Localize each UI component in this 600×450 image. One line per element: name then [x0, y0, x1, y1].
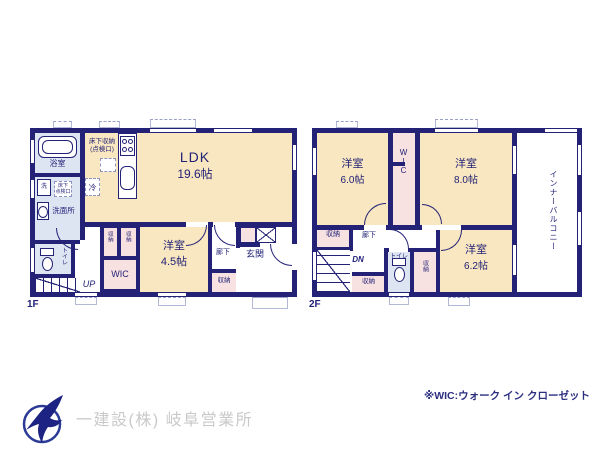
toilet-bowl-icon — [42, 257, 53, 271]
window — [545, 128, 577, 133]
window — [292, 145, 297, 170]
stove-burner-icon — [122, 139, 127, 144]
bedroom-8-0-label: 洋室 — [420, 158, 512, 172]
bedroom-4-5-label: 洋室 — [140, 240, 208, 254]
bay-window — [389, 297, 409, 305]
hall-closet-label: 収納 — [212, 277, 236, 285]
bay-window — [448, 297, 470, 306]
window — [150, 128, 196, 133]
ldk-area: 19.6帖 — [150, 167, 240, 182]
door-opening — [364, 225, 386, 230]
wall-segment — [236, 243, 260, 247]
wall-segment — [317, 225, 512, 230]
wic-1f-label: WIC — [104, 269, 136, 280]
bedroom-6-2-area: 6.2帖 — [440, 261, 512, 274]
wall-segment — [212, 269, 236, 273]
washroom-label: 洗面所 — [47, 206, 80, 215]
shoe-cabinet-icon — [256, 227, 276, 243]
closet-b-label: 収納 — [124, 231, 131, 242]
stairs-up-label: UP — [80, 279, 98, 290]
entrance-opening — [292, 244, 297, 270]
closet-2f-c-label: 収納 — [420, 260, 428, 272]
toilet-bowl-icon — [394, 267, 405, 282]
underfloor-storage-label: 床下収納 (点検口) — [84, 138, 120, 154]
window — [512, 245, 517, 275]
window — [577, 145, 582, 175]
wall-segment — [35, 173, 80, 177]
closet-2f-c — [414, 252, 436, 292]
floor2-label: 2F — [309, 299, 331, 312]
closet-a-label: 収納 — [106, 231, 113, 242]
bay-window — [53, 121, 72, 128]
underfloor-storage-hatch — [100, 158, 116, 172]
bedroom-6-2-label: 洋室 — [440, 244, 512, 258]
stairs-diagonal — [35, 278, 80, 292]
washer-label: 洗 — [37, 184, 51, 192]
bathtub-inner — [42, 140, 73, 154]
door-opening — [422, 225, 442, 230]
stove-burner-icon — [128, 139, 133, 144]
kitchen-sink-icon — [120, 166, 135, 190]
hall-2f-label: 廊下 — [356, 232, 382, 241]
company-logo — [18, 393, 66, 447]
stove-burner-icon — [122, 147, 127, 152]
window — [312, 252, 317, 280]
stove-burner-icon — [128, 147, 133, 152]
floor1-label: 1F — [27, 299, 49, 312]
balcony-label: インナーバルコニー — [548, 170, 558, 251]
closet-2f-b-label: 収納 — [352, 278, 385, 286]
underfloor-hatch-label: 床下 点検口 — [54, 183, 72, 196]
wic-2f-label: WIC — [398, 148, 408, 175]
bath-label: 浴室 — [35, 159, 80, 169]
fridge-label: 冷 — [85, 183, 100, 192]
logo-bird-icon — [18, 393, 66, 447]
window — [577, 212, 582, 245]
bedroom-4-5-area: 4.5帖 — [140, 256, 208, 270]
window — [435, 128, 478, 133]
wall-segment — [388, 133, 393, 225]
entrance-label: 玄関 — [240, 249, 270, 260]
closet-2f-a-label: 収納 — [317, 231, 349, 240]
window — [214, 128, 252, 133]
stairs-diagonal — [317, 250, 350, 292]
wall-segment — [349, 227, 353, 251]
bedroom-6-0-area: 6.0帖 — [317, 175, 388, 188]
window — [30, 180, 35, 198]
company-name: 一建設(株) 岐阜営業所 — [76, 406, 253, 430]
hall-1f-label: 廊下 — [209, 249, 237, 258]
toilet-1f-label: トイレ — [59, 247, 67, 265]
stairs-down-label: DN — [349, 255, 367, 265]
bay-window — [150, 119, 196, 128]
wall-segment — [410, 252, 414, 292]
bay-window — [435, 119, 478, 128]
window — [512, 146, 517, 174]
room-wic-2f — [393, 133, 415, 225]
bedroom-6-0-label: 洋室 — [317, 158, 388, 172]
ldk-label: LDK — [150, 149, 240, 167]
bay-window — [336, 121, 358, 128]
bay-window — [158, 297, 186, 306]
wall-segment — [352, 272, 385, 276]
entrance-porch — [252, 297, 288, 309]
window — [30, 248, 35, 272]
floorplan-canvas: LDK 19.6帖 洋室 4.5帖 浴室 洗面所 洗 床下収納 (点検口) 床下… — [0, 0, 600, 450]
toilet-2f-label: トイレ — [388, 254, 410, 262]
entrance-closet — [240, 227, 256, 243]
bedroom-8-0-area: 8.0帖 — [420, 175, 512, 188]
toilet-tank-icon — [40, 248, 54, 256]
bay-window — [75, 297, 97, 305]
bay-window — [99, 121, 120, 128]
wic-note: ※WIC:ウォーク イン クローゼット — [424, 388, 590, 403]
